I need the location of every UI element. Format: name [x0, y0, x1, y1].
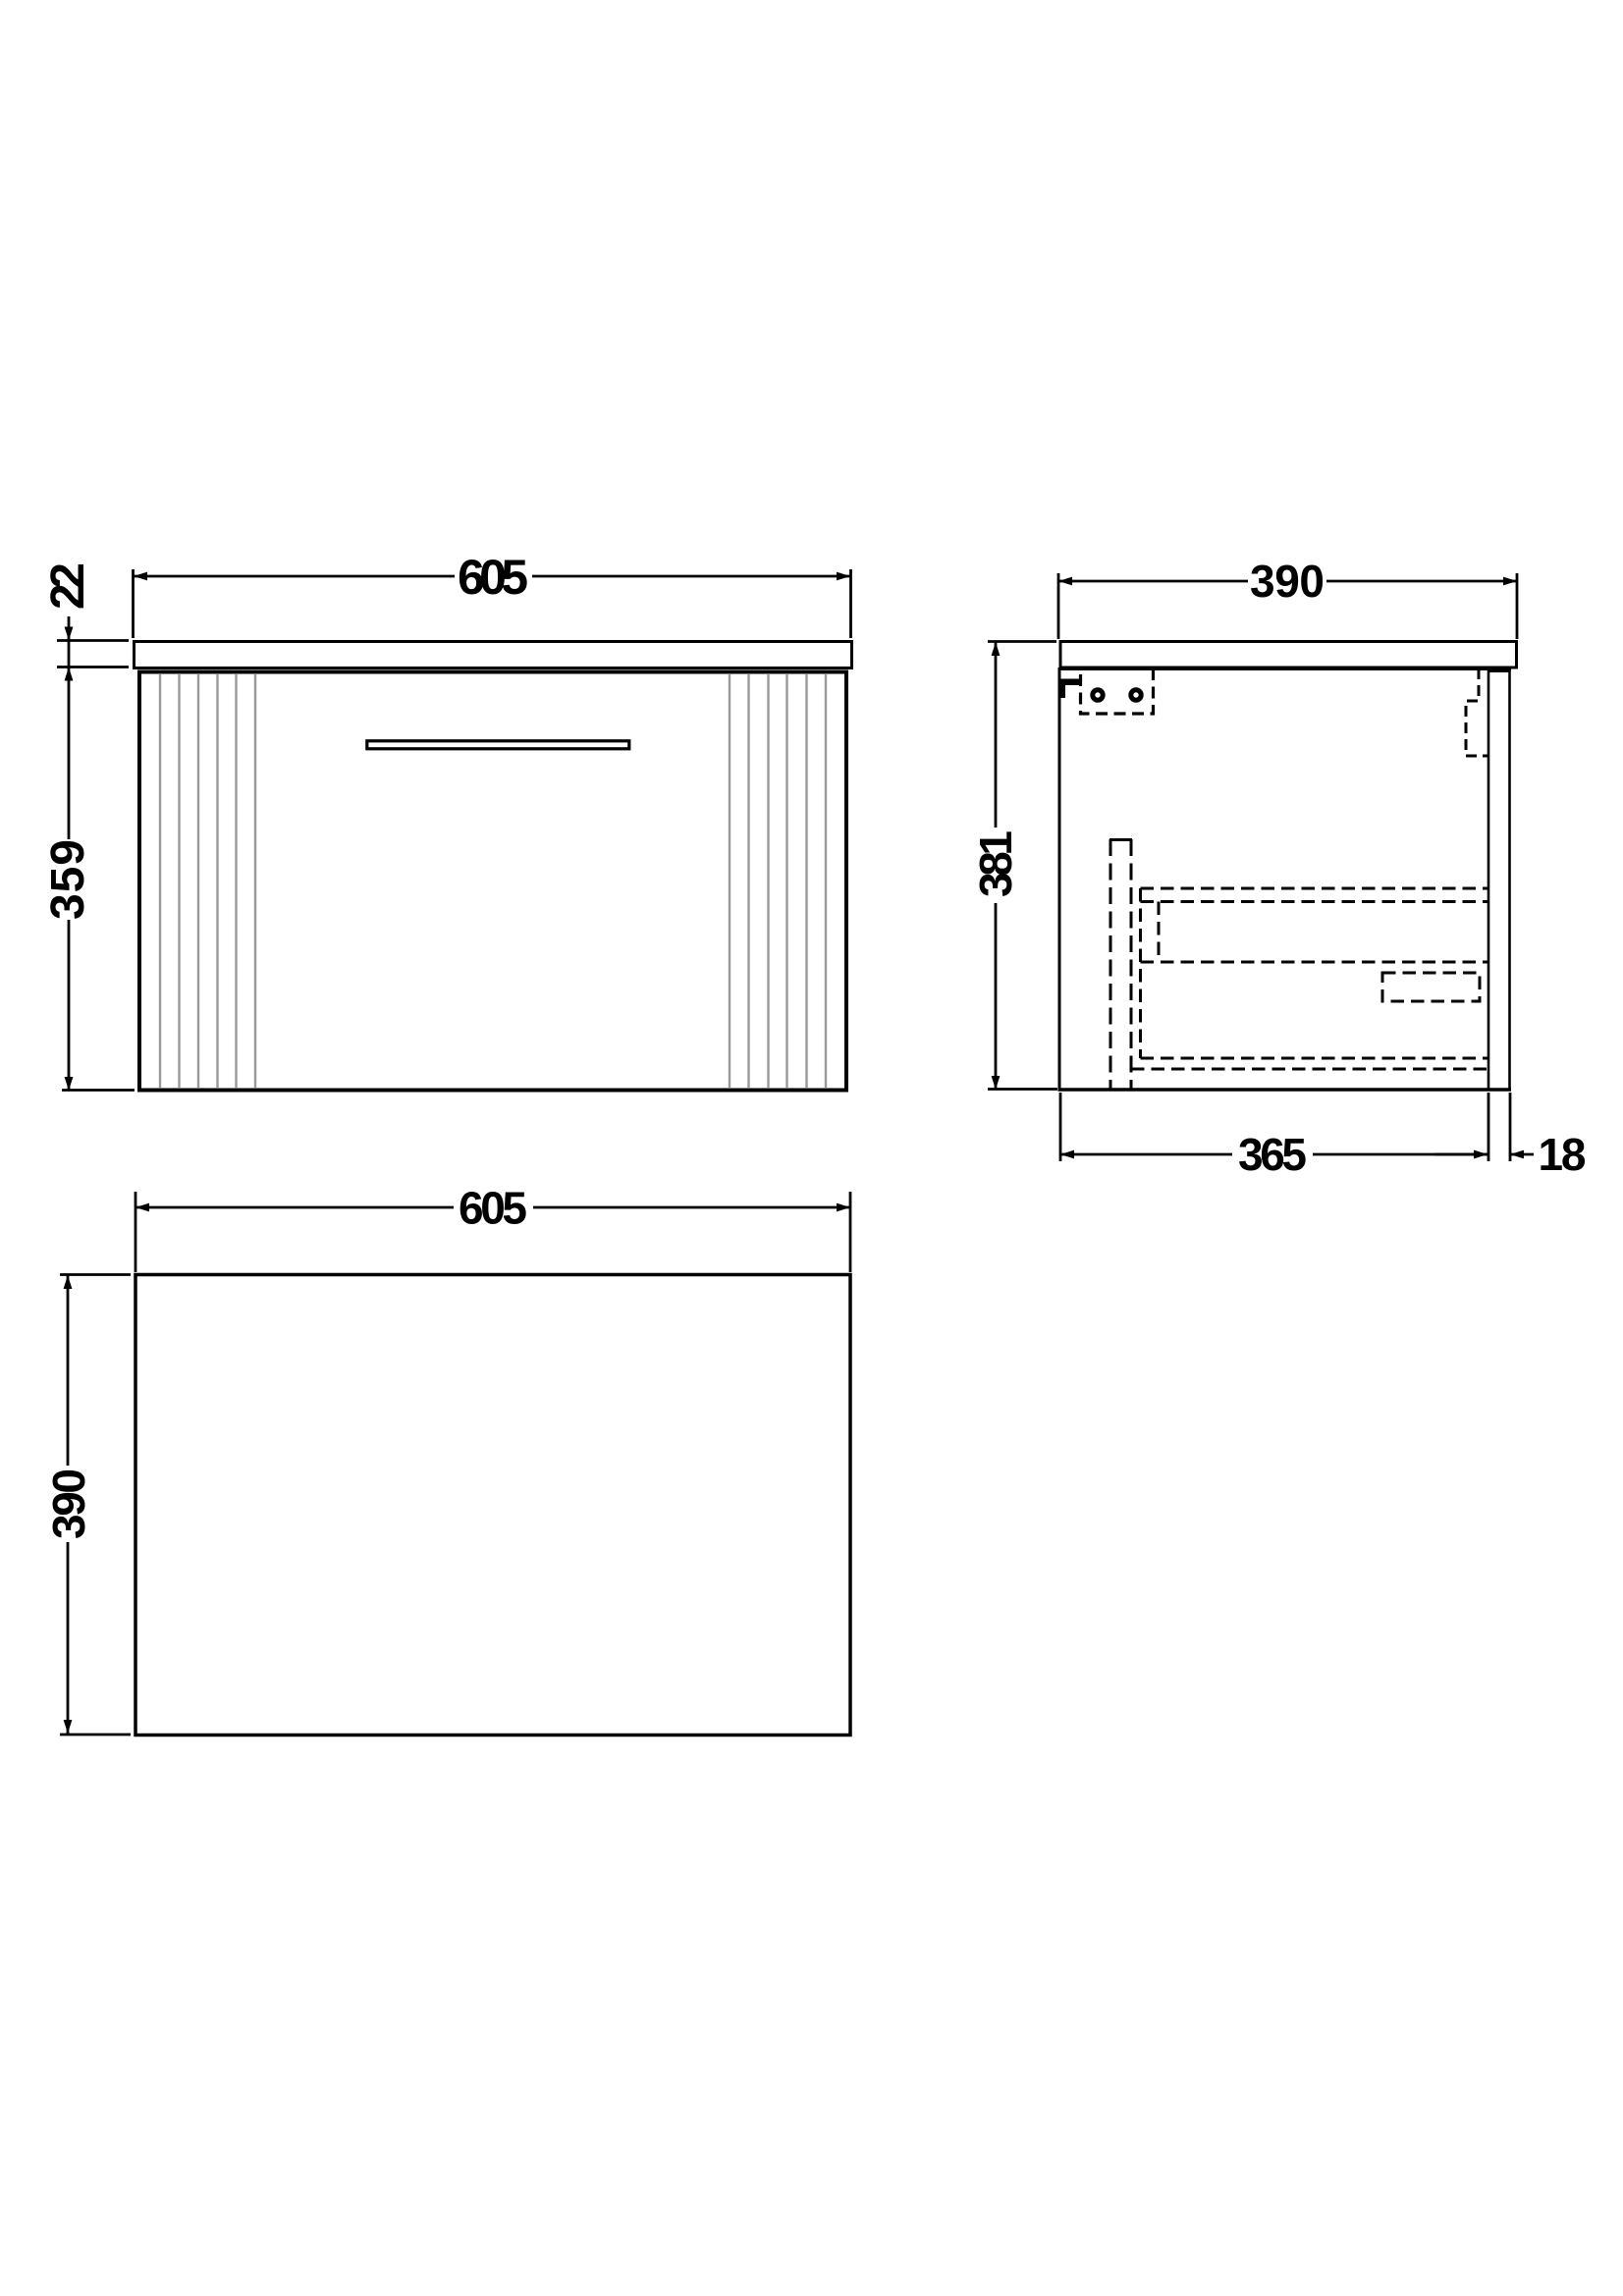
- svg-text:605: 605: [459, 1183, 527, 1234]
- svg-text:381: 381: [970, 830, 1021, 897]
- svg-text:605: 605: [458, 550, 528, 605]
- svg-text:22: 22: [42, 562, 94, 610]
- svg-text:18: 18: [1539, 1129, 1587, 1180]
- svg-text:390: 390: [43, 1468, 94, 1539]
- svg-text:390: 390: [1250, 556, 1325, 607]
- svg-text:359: 359: [42, 839, 94, 920]
- svg-text:365: 365: [1238, 1129, 1307, 1180]
